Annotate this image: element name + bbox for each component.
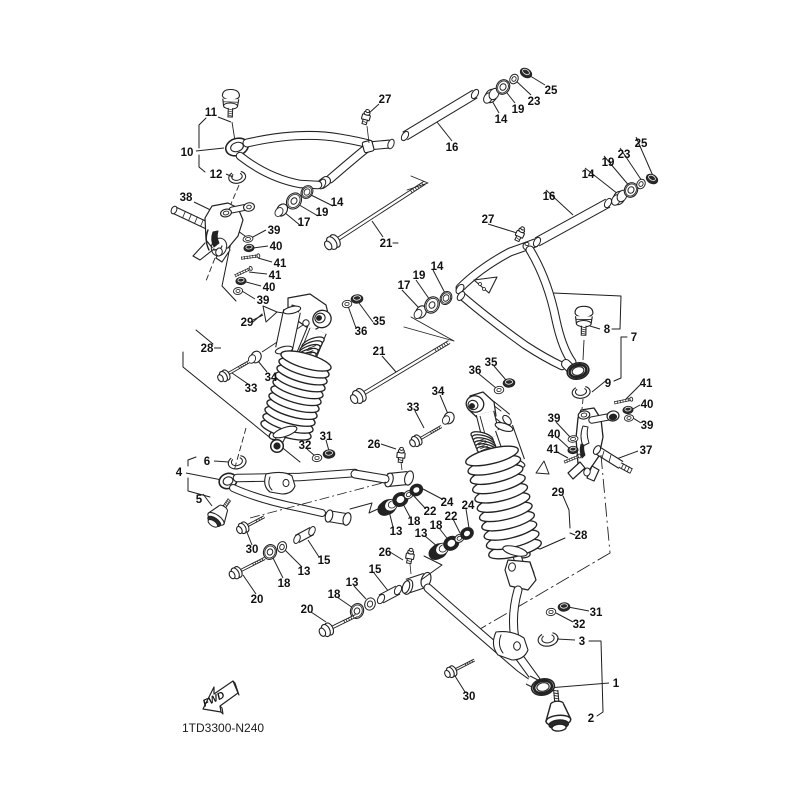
svg-text:33: 33 [245,383,258,395]
svg-text:21: 21 [380,238,393,250]
svg-text:39: 39 [257,295,270,307]
svg-text:11: 11 [205,107,218,119]
svg-text:18: 18 [430,520,443,532]
svg-text:17: 17 [398,280,411,292]
svg-text:14: 14 [582,169,595,181]
svg-text:32: 32 [299,440,312,452]
svg-text:20: 20 [251,594,264,606]
svg-text:15: 15 [369,564,382,576]
svg-text:27: 27 [379,94,392,106]
svg-text:18: 18 [278,578,291,590]
svg-text:12: 12 [210,169,223,181]
svg-text:22: 22 [424,506,437,518]
svg-text:34: 34 [432,386,445,398]
svg-text:41: 41 [274,258,287,270]
svg-text:38: 38 [180,192,193,204]
svg-text:13: 13 [415,528,428,540]
svg-text:1TD3300-N240: 1TD3300-N240 [182,721,264,735]
svg-text:41: 41 [640,378,653,390]
svg-text:32: 32 [573,619,586,631]
svg-text:23: 23 [618,149,631,161]
svg-text:39: 39 [268,225,281,237]
svg-text:21: 21 [373,346,386,358]
svg-text:40: 40 [270,241,283,253]
svg-text:31: 31 [320,431,333,443]
svg-text:29: 29 [552,487,565,499]
svg-text:16: 16 [543,191,556,203]
svg-text:36: 36 [355,326,368,338]
svg-text:39: 39 [641,420,654,432]
svg-text:30: 30 [246,544,259,556]
svg-text:26: 26 [379,547,392,559]
svg-text:19: 19 [512,104,525,116]
svg-text:9: 9 [605,378,611,390]
svg-text:17: 17 [298,217,311,229]
svg-text:2: 2 [588,713,594,725]
svg-text:36: 36 [469,365,482,377]
svg-text:28: 28 [575,530,588,542]
svg-text:25: 25 [545,85,558,97]
svg-text:1: 1 [613,678,620,690]
svg-text:19: 19 [602,157,615,169]
svg-text:13: 13 [298,566,311,578]
svg-text:28: 28 [201,343,214,355]
svg-text:10: 10 [181,147,194,159]
svg-text:22: 22 [445,511,458,523]
svg-text:20: 20 [301,604,314,616]
svg-text:14: 14 [431,261,444,273]
svg-text:7: 7 [631,332,637,344]
svg-text:23: 23 [528,96,541,108]
svg-text:31: 31 [590,607,603,619]
svg-text:14: 14 [495,114,508,126]
svg-text:33: 33 [407,402,420,414]
svg-text:35: 35 [373,316,386,328]
svg-text:40: 40 [548,429,561,441]
svg-text:24: 24 [441,497,454,509]
svg-text:25: 25 [635,138,648,150]
svg-text:4: 4 [176,467,183,479]
svg-text:41: 41 [547,444,560,456]
svg-text:6: 6 [204,456,210,468]
svg-text:8: 8 [604,324,611,336]
svg-text:15: 15 [318,555,331,567]
svg-text:14: 14 [331,197,344,209]
svg-text:40: 40 [641,399,654,411]
svg-text:29: 29 [241,317,254,329]
svg-text:13: 13 [390,526,403,538]
svg-text:18: 18 [408,516,421,528]
svg-text:35: 35 [485,357,498,369]
svg-text:5: 5 [196,494,203,506]
svg-text:16: 16 [446,142,459,154]
svg-text:19: 19 [413,270,426,282]
svg-text:27: 27 [482,214,495,226]
svg-text:26: 26 [368,439,381,451]
svg-text:3: 3 [579,636,585,648]
svg-text:19: 19 [316,207,329,219]
svg-text:18: 18 [328,589,341,601]
svg-text:13: 13 [346,577,359,589]
svg-text:41: 41 [269,270,282,282]
svg-text:30: 30 [463,691,476,703]
svg-text:40: 40 [263,282,276,294]
svg-text:37: 37 [640,445,653,457]
svg-text:24: 24 [462,500,475,512]
svg-text:34: 34 [265,372,278,384]
svg-text:39: 39 [548,413,561,425]
